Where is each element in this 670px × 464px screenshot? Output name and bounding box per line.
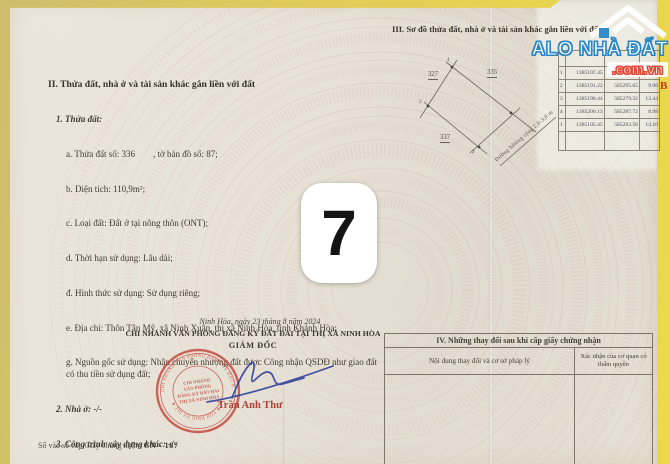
coordinate-row-empty: [559, 132, 660, 151]
vertex-3: 3: [419, 100, 422, 105]
coordinate-row: 1 1385105.45 585293.56 14.10: [559, 119, 660, 132]
page-number-badge: 7: [301, 183, 377, 283]
vertex-2: 2: [472, 150, 475, 155]
adjacent-parcel-337: 337: [440, 134, 450, 143]
issuing-office: CHI NHÁNH VĂN PHÒNG ĐĂNG KÝ ĐẤT ĐAI TẠI …: [118, 329, 388, 338]
signer-name: Trần Anh Thư: [200, 400, 300, 411]
date-line: Ninh Hòa, ngày 23 tháng 8 năm 2024: [180, 317, 340, 326]
watermark-domain: .com.vn: [607, 62, 668, 77]
section-4-empty-body: [385, 375, 652, 464]
serial-value: CN - 187: [143, 441, 178, 450]
coordinate-row: 2 1385191.22 585295.65 9.96: [559, 80, 660, 93]
coordinate-row: 4 1385200.13 585287.72 8.98: [559, 106, 660, 119]
coordinate-row: 3 1385190.44 585279.32 13.44: [559, 93, 660, 106]
serial-label: Số vào sổ cấp Giấy chứng nhận:: [38, 441, 141, 450]
adjacent-parcel-327: 327: [428, 71, 438, 80]
section-4-col2-header: Xác nhận của cơ quan có thẩm quyền: [575, 348, 652, 374]
section-4-header-row: Nội dung thay đổi và cơ sở pháp lý Xác n…: [385, 348, 652, 375]
photo-of-land-certificate: II. Thửa đất, nhà ở và tài sản khác gắn …: [0, 0, 670, 464]
watermark-title: ALO NHÀ ĐẤT: [495, 39, 668, 61]
vertex-4: 4: [447, 58, 450, 63]
house-icon: [495, 2, 670, 38]
page-number: 7: [321, 201, 357, 265]
section-4-col1-header: Nội dung thay đổi và cơ sở pháp lý: [385, 348, 575, 374]
alo-nha-dat-watermark: ALO NHÀ ĐẤT .com.vn: [495, 2, 670, 78]
certificate-serial-line: Số vào sổ cấp Giấy chứng nhận: CN - 187: [38, 441, 178, 450]
section-4-title: IV. Những thay đổi sau khi cấp giấy chứn…: [385, 334, 652, 348]
director-signature: [195, 342, 345, 408]
section-4-changes-table: IV. Những thay đổi sau khi cấp giấy chứn…: [384, 333, 653, 464]
stray-red-mark: B: [660, 80, 667, 92]
